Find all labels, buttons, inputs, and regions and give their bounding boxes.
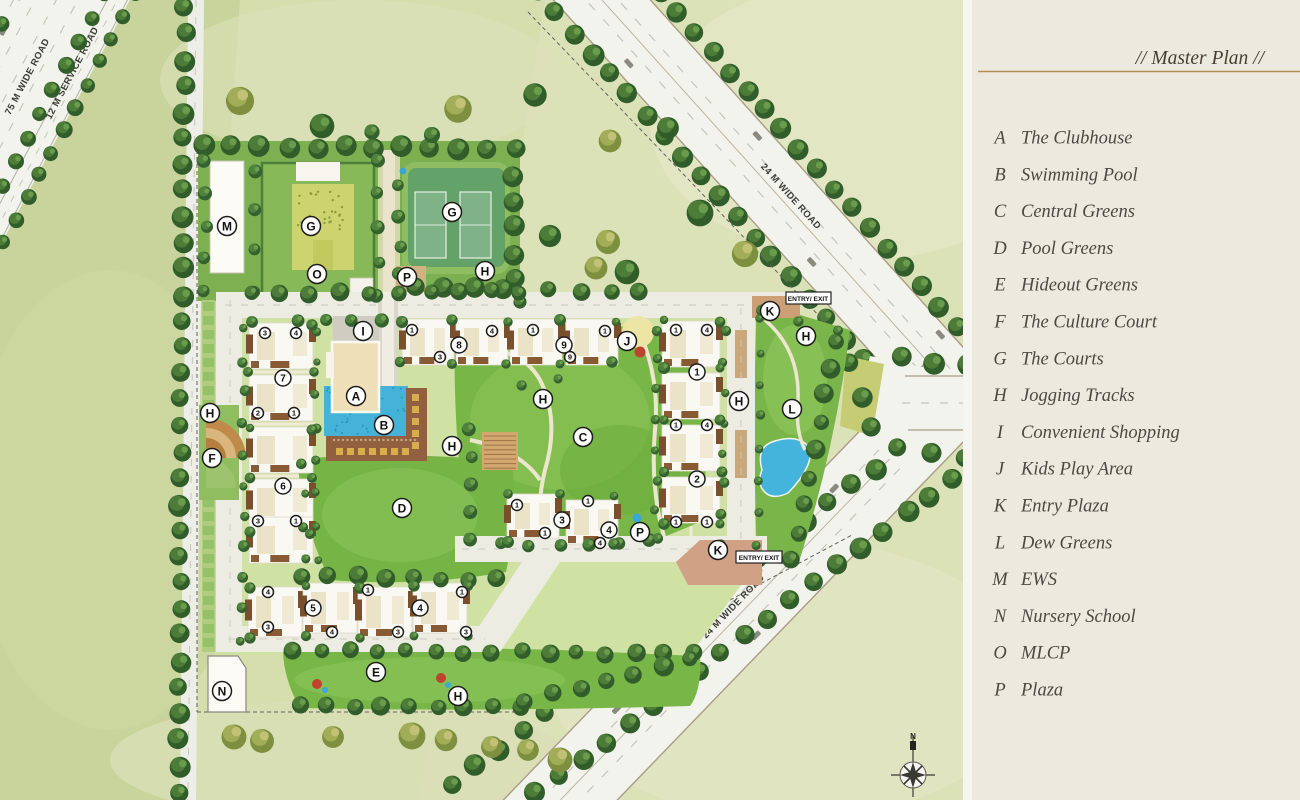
svg-text:M: M — [222, 219, 232, 233]
svg-text:4: 4 — [417, 604, 423, 615]
svg-text:N: N — [218, 684, 227, 698]
svg-text:H: H — [992, 386, 1008, 406]
svg-text:G: G — [306, 219, 315, 233]
svg-text:1: 1 — [366, 586, 370, 595]
svg-text:Entry Plaza: Entry Plaza — [1020, 497, 1109, 517]
svg-text:9: 9 — [568, 353, 572, 362]
svg-text:H: H — [802, 329, 811, 343]
svg-text:9: 9 — [561, 341, 567, 352]
svg-text:Plaza: Plaza — [1020, 681, 1063, 701]
svg-text:C: C — [994, 202, 1007, 222]
svg-text:1: 1 — [603, 327, 607, 336]
svg-text:H: H — [481, 264, 490, 278]
svg-text:1: 1 — [586, 497, 590, 506]
svg-text:H: H — [206, 406, 215, 420]
svg-text:Convenient Shopping: Convenient Shopping — [1021, 423, 1180, 443]
svg-text:D: D — [398, 501, 407, 515]
svg-text:// Master Plan //: // Master Plan // — [1135, 48, 1266, 69]
svg-text:1: 1 — [294, 517, 298, 526]
svg-text:K: K — [993, 497, 1008, 517]
svg-text:MLCP: MLCP — [1020, 644, 1070, 664]
svg-text:M: M — [991, 570, 1009, 590]
svg-text:EWS: EWS — [1020, 570, 1057, 590]
svg-text:3: 3 — [266, 623, 270, 632]
svg-text:H: H — [735, 394, 744, 408]
svg-text:P: P — [993, 681, 1005, 701]
svg-text:1: 1 — [292, 409, 296, 418]
svg-text:1: 1 — [674, 326, 678, 335]
svg-text:E: E — [993, 276, 1005, 296]
svg-text:1: 1 — [543, 529, 547, 538]
svg-text:4: 4 — [606, 526, 612, 537]
svg-text:O: O — [312, 267, 321, 281]
svg-text:1: 1 — [515, 501, 519, 510]
svg-text:The Courts: The Courts — [1021, 349, 1104, 369]
svg-text:L: L — [788, 402, 795, 416]
svg-text:O: O — [993, 644, 1006, 664]
svg-text:N: N — [910, 732, 916, 741]
svg-text:Central Greens: Central Greens — [1021, 202, 1135, 222]
svg-text:1: 1 — [694, 368, 700, 379]
svg-text:1: 1 — [410, 326, 414, 335]
svg-text:3: 3 — [464, 628, 468, 637]
svg-text:K: K — [766, 304, 775, 318]
svg-text:I: I — [996, 423, 1004, 443]
svg-text:1: 1 — [674, 518, 678, 527]
svg-text:2: 2 — [256, 409, 260, 418]
svg-text:8: 8 — [456, 341, 462, 352]
svg-text:Hideout Greens: Hideout Greens — [1020, 276, 1138, 296]
svg-text:H: H — [448, 439, 457, 453]
svg-text:L: L — [994, 533, 1005, 553]
svg-text:Kids Play Area: Kids Play Area — [1020, 460, 1133, 480]
svg-text:P: P — [403, 270, 411, 284]
svg-text:The Culture Court: The Culture Court — [1021, 313, 1158, 333]
svg-text:H: H — [454, 689, 463, 703]
svg-text:1: 1 — [460, 588, 464, 597]
svg-text:1: 1 — [674, 421, 678, 430]
svg-text:3: 3 — [438, 353, 442, 362]
svg-text:6: 6 — [280, 482, 286, 493]
svg-text:F: F — [208, 451, 215, 465]
svg-text:The Clubhouse: The Clubhouse — [1021, 129, 1133, 149]
svg-text:5: 5 — [310, 604, 316, 615]
svg-text:P: P — [636, 525, 644, 539]
svg-text:C: C — [579, 430, 588, 444]
svg-text:N: N — [993, 607, 1008, 627]
svg-text:Swimming Pool: Swimming Pool — [1021, 165, 1138, 185]
svg-text:2: 2 — [694, 475, 700, 486]
svg-text:H: H — [539, 392, 548, 406]
svg-text:3: 3 — [263, 329, 267, 338]
svg-text:F: F — [993, 313, 1006, 333]
svg-text:B: B — [994, 165, 1005, 185]
svg-text:K: K — [714, 543, 723, 557]
svg-text:J: J — [996, 460, 1005, 480]
svg-text:7: 7 — [280, 374, 286, 385]
svg-text:ENTRY/ EXIT: ENTRY/ EXIT — [788, 296, 828, 303]
svg-text:G: G — [447, 205, 456, 219]
svg-text:Nursery School: Nursery School — [1020, 607, 1136, 627]
svg-text:Jogging Tracks: Jogging Tracks — [1021, 386, 1135, 406]
svg-text:3: 3 — [256, 517, 260, 526]
svg-text:ENTRY/ EXIT: ENTRY/ EXIT — [739, 555, 779, 562]
svg-text:E: E — [372, 665, 380, 679]
svg-text:J: J — [624, 334, 631, 348]
svg-text:1: 1 — [705, 518, 709, 527]
svg-text:G: G — [993, 349, 1006, 369]
svg-text:1: 1 — [531, 326, 535, 335]
svg-text:D: D — [992, 239, 1007, 259]
svg-text:Dew Greens: Dew Greens — [1020, 533, 1112, 553]
svg-text:3: 3 — [396, 628, 400, 637]
svg-text:I: I — [361, 324, 364, 338]
svg-text:A: A — [352, 389, 361, 403]
svg-text:B: B — [380, 418, 389, 432]
svg-text:3: 3 — [559, 516, 565, 527]
svg-text:Pool Greens: Pool Greens — [1020, 239, 1113, 259]
svg-text:A: A — [992, 129, 1006, 149]
